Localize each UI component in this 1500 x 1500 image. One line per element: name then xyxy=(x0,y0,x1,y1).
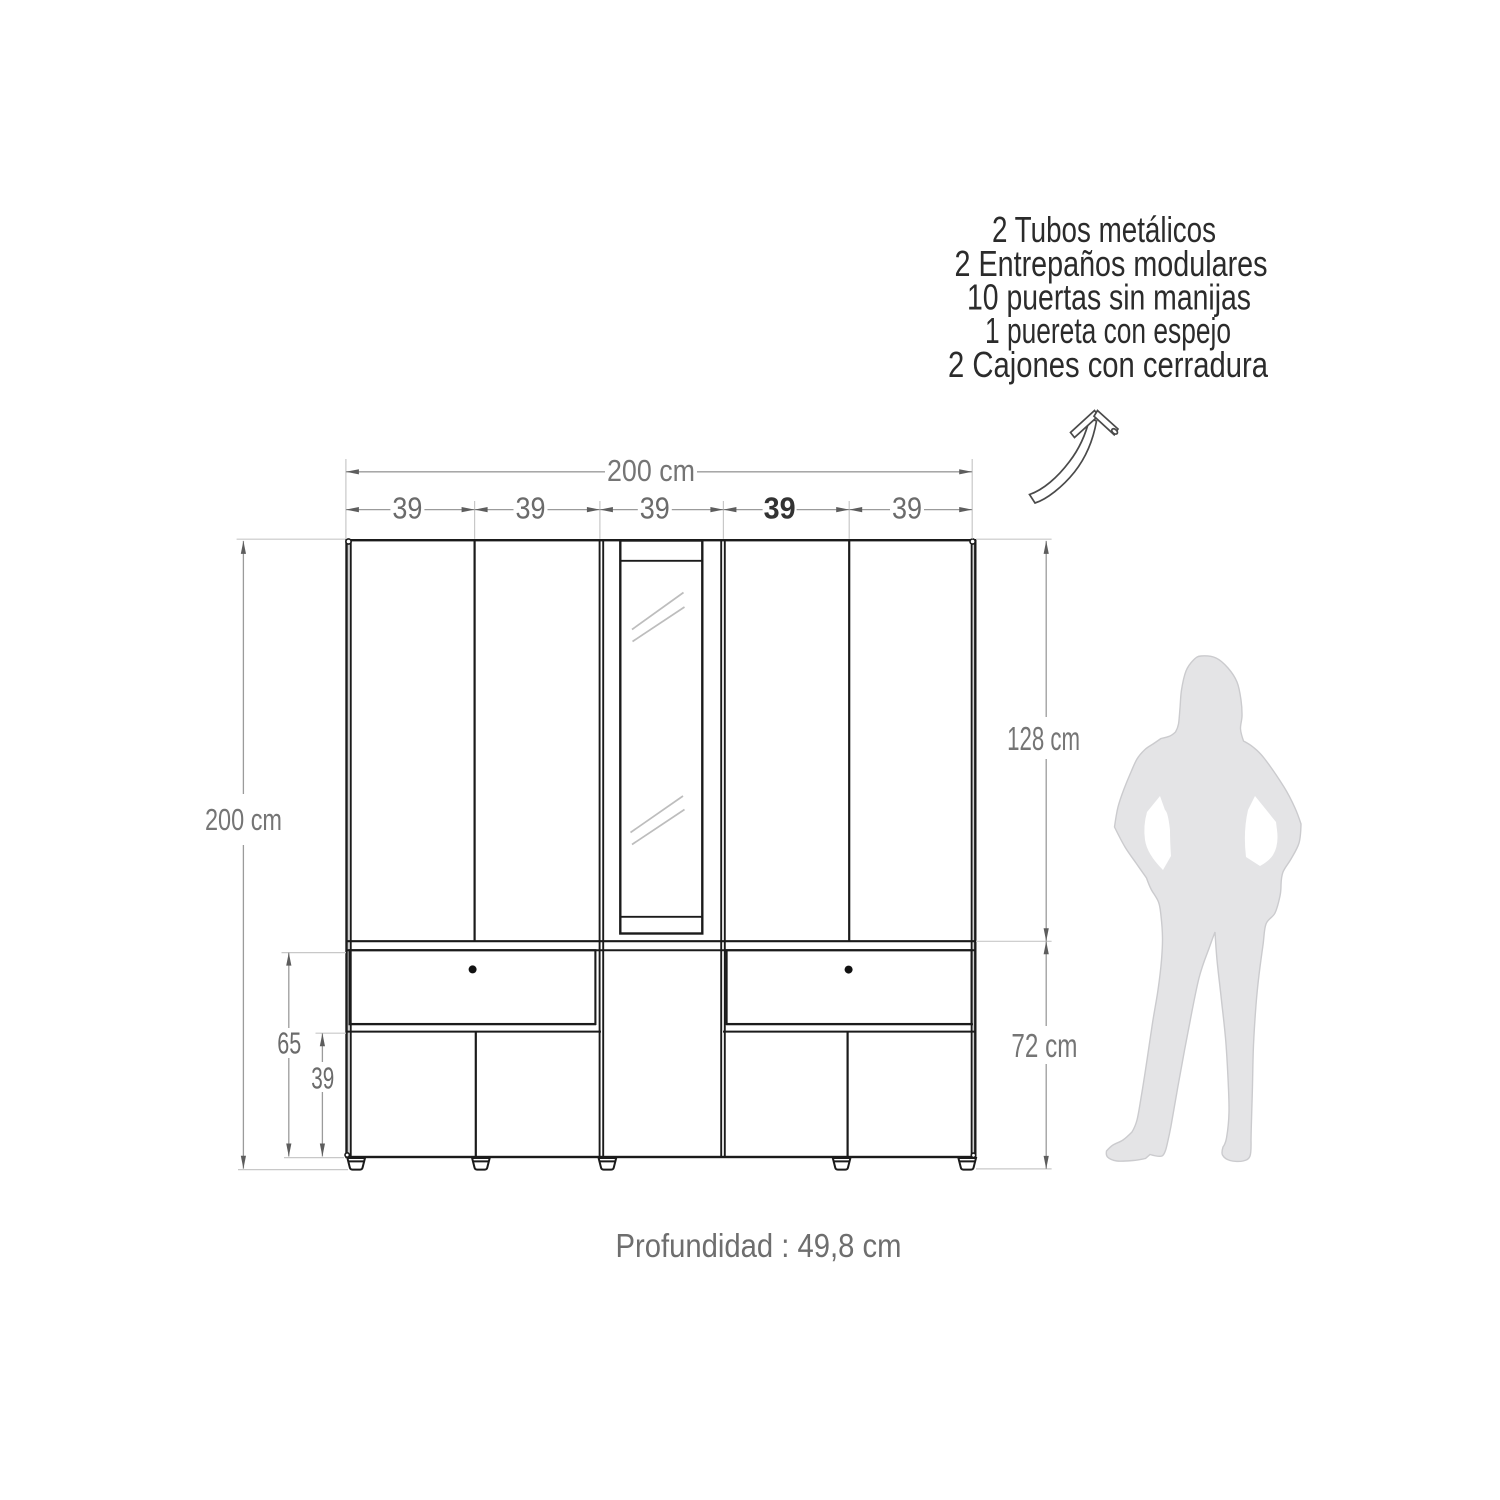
svg-text:128 cm: 128 cm xyxy=(1007,720,1080,757)
svg-text:200 cm: 200 cm xyxy=(607,453,695,488)
svg-text:65: 65 xyxy=(277,1026,301,1061)
svg-text:39: 39 xyxy=(516,490,546,525)
svg-text:39: 39 xyxy=(764,490,796,525)
svg-text:72 cm: 72 cm xyxy=(1011,1027,1077,1064)
svg-text:Profundidad : 49,8 cm: Profundidad : 49,8 cm xyxy=(616,1227,902,1264)
svg-text:39: 39 xyxy=(892,490,922,525)
svg-text:200 cm: 200 cm xyxy=(205,802,282,837)
svg-text:39: 39 xyxy=(311,1061,334,1096)
svg-text:2 Cajones con cerradura: 2 Cajones con cerradura xyxy=(948,344,1269,385)
svg-text:39: 39 xyxy=(640,490,670,525)
svg-text:39: 39 xyxy=(392,490,422,525)
